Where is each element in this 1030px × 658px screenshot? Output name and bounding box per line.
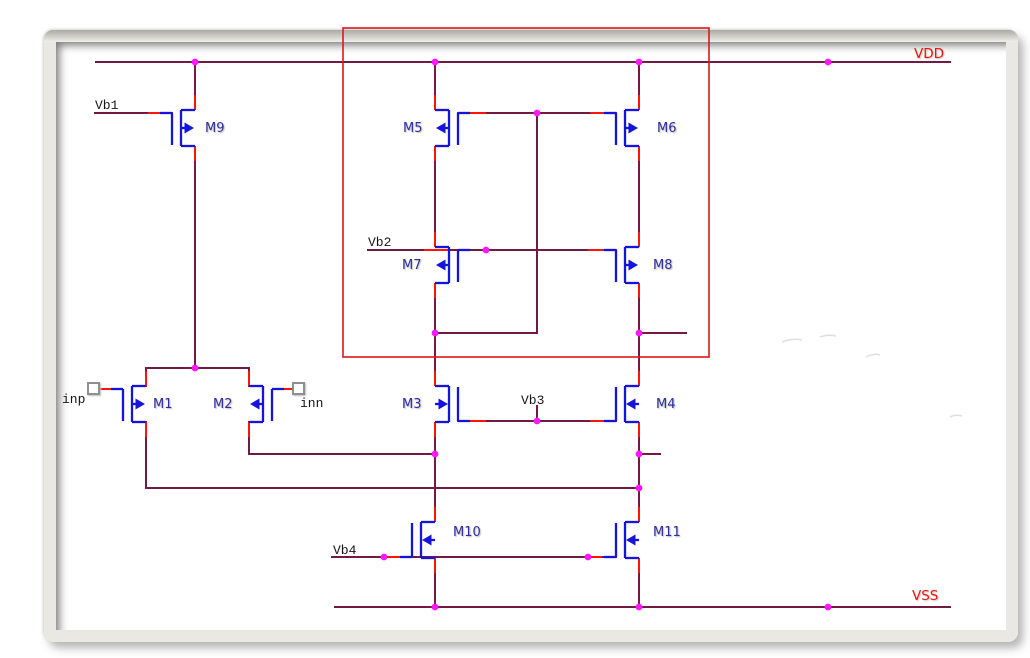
highlight-box-group [343, 28, 709, 357]
junction-dot [534, 110, 541, 117]
transistor-symbol [604, 522, 639, 558]
junction-dot [636, 485, 643, 492]
transistor-symbol [400, 522, 435, 558]
device-label: M1 [153, 397, 173, 412]
junction-dot [825, 59, 832, 66]
device-label: M5 [403, 121, 423, 136]
device-label: M8 [653, 258, 673, 273]
junction-dot [636, 451, 643, 458]
junction-dot [534, 418, 541, 425]
schematic-window: M1M2M3M4M5M6M7M8M9M10M11Vb1Vb2Vb3Vb4inpi… [0, 0, 1030, 658]
transistor-symbol [604, 110, 639, 146]
transistor-symbol [435, 386, 470, 422]
device-label: M2 [213, 397, 233, 412]
highlight-box [343, 28, 709, 357]
junction-dot [432, 330, 439, 337]
transistor-symbol [160, 110, 195, 146]
transistor-symbol [435, 247, 470, 283]
net-label: Vb2 [368, 235, 391, 250]
junction-dot [636, 604, 643, 611]
junction-dot [483, 247, 490, 254]
net-label: Vb1 [95, 98, 119, 113]
port-inn[interactable] [293, 383, 304, 394]
net-label: Vb3 [521, 393, 544, 408]
artifact-smudges [782, 335, 962, 417]
device-label: M10 [453, 525, 481, 540]
transistor-symbol [604, 247, 639, 283]
junction-dot [636, 330, 643, 337]
net-label: inp [62, 392, 85, 407]
rail-label: VDD [914, 46, 944, 62]
net-wires [95, 62, 950, 607]
junction-dots [192, 59, 832, 611]
net-label: Vb4 [333, 543, 357, 558]
transistor-symbols [111, 110, 639, 558]
junction-dot [381, 554, 388, 561]
transistor-symbol [435, 110, 470, 146]
smudge-mark [866, 354, 880, 357]
junction-dot [585, 554, 592, 561]
junction-dot [432, 604, 439, 611]
junction-dot [192, 365, 199, 372]
junction-dot [432, 59, 439, 66]
junction-dot [432, 451, 439, 458]
smudge-mark [782, 339, 802, 342]
smudge-mark [950, 415, 962, 417]
device-label: M7 [402, 258, 422, 273]
smudge-mark [820, 335, 836, 337]
device-label: M9 [205, 121, 225, 136]
junction-dot [192, 59, 199, 66]
device-label: M4 [656, 397, 676, 412]
device-label: M3 [402, 397, 422, 412]
rail-label: VSS [912, 588, 938, 604]
junction-dot [636, 59, 643, 66]
terminal-stubs [99, 95, 639, 573]
port-inp[interactable] [88, 383, 99, 394]
transistor-symbol [249, 386, 284, 422]
device-label: M11 [653, 525, 681, 540]
device-label: M6 [657, 121, 677, 136]
junction-dot [825, 604, 832, 611]
circuit-canvas: M1M2M3M4M5M6M7M8M9M10M11Vb1Vb2Vb3Vb4inpi… [0, 0, 1030, 658]
transistor-symbol [111, 386, 146, 422]
transistor-symbol [604, 386, 639, 422]
net-label: inn [300, 396, 323, 411]
